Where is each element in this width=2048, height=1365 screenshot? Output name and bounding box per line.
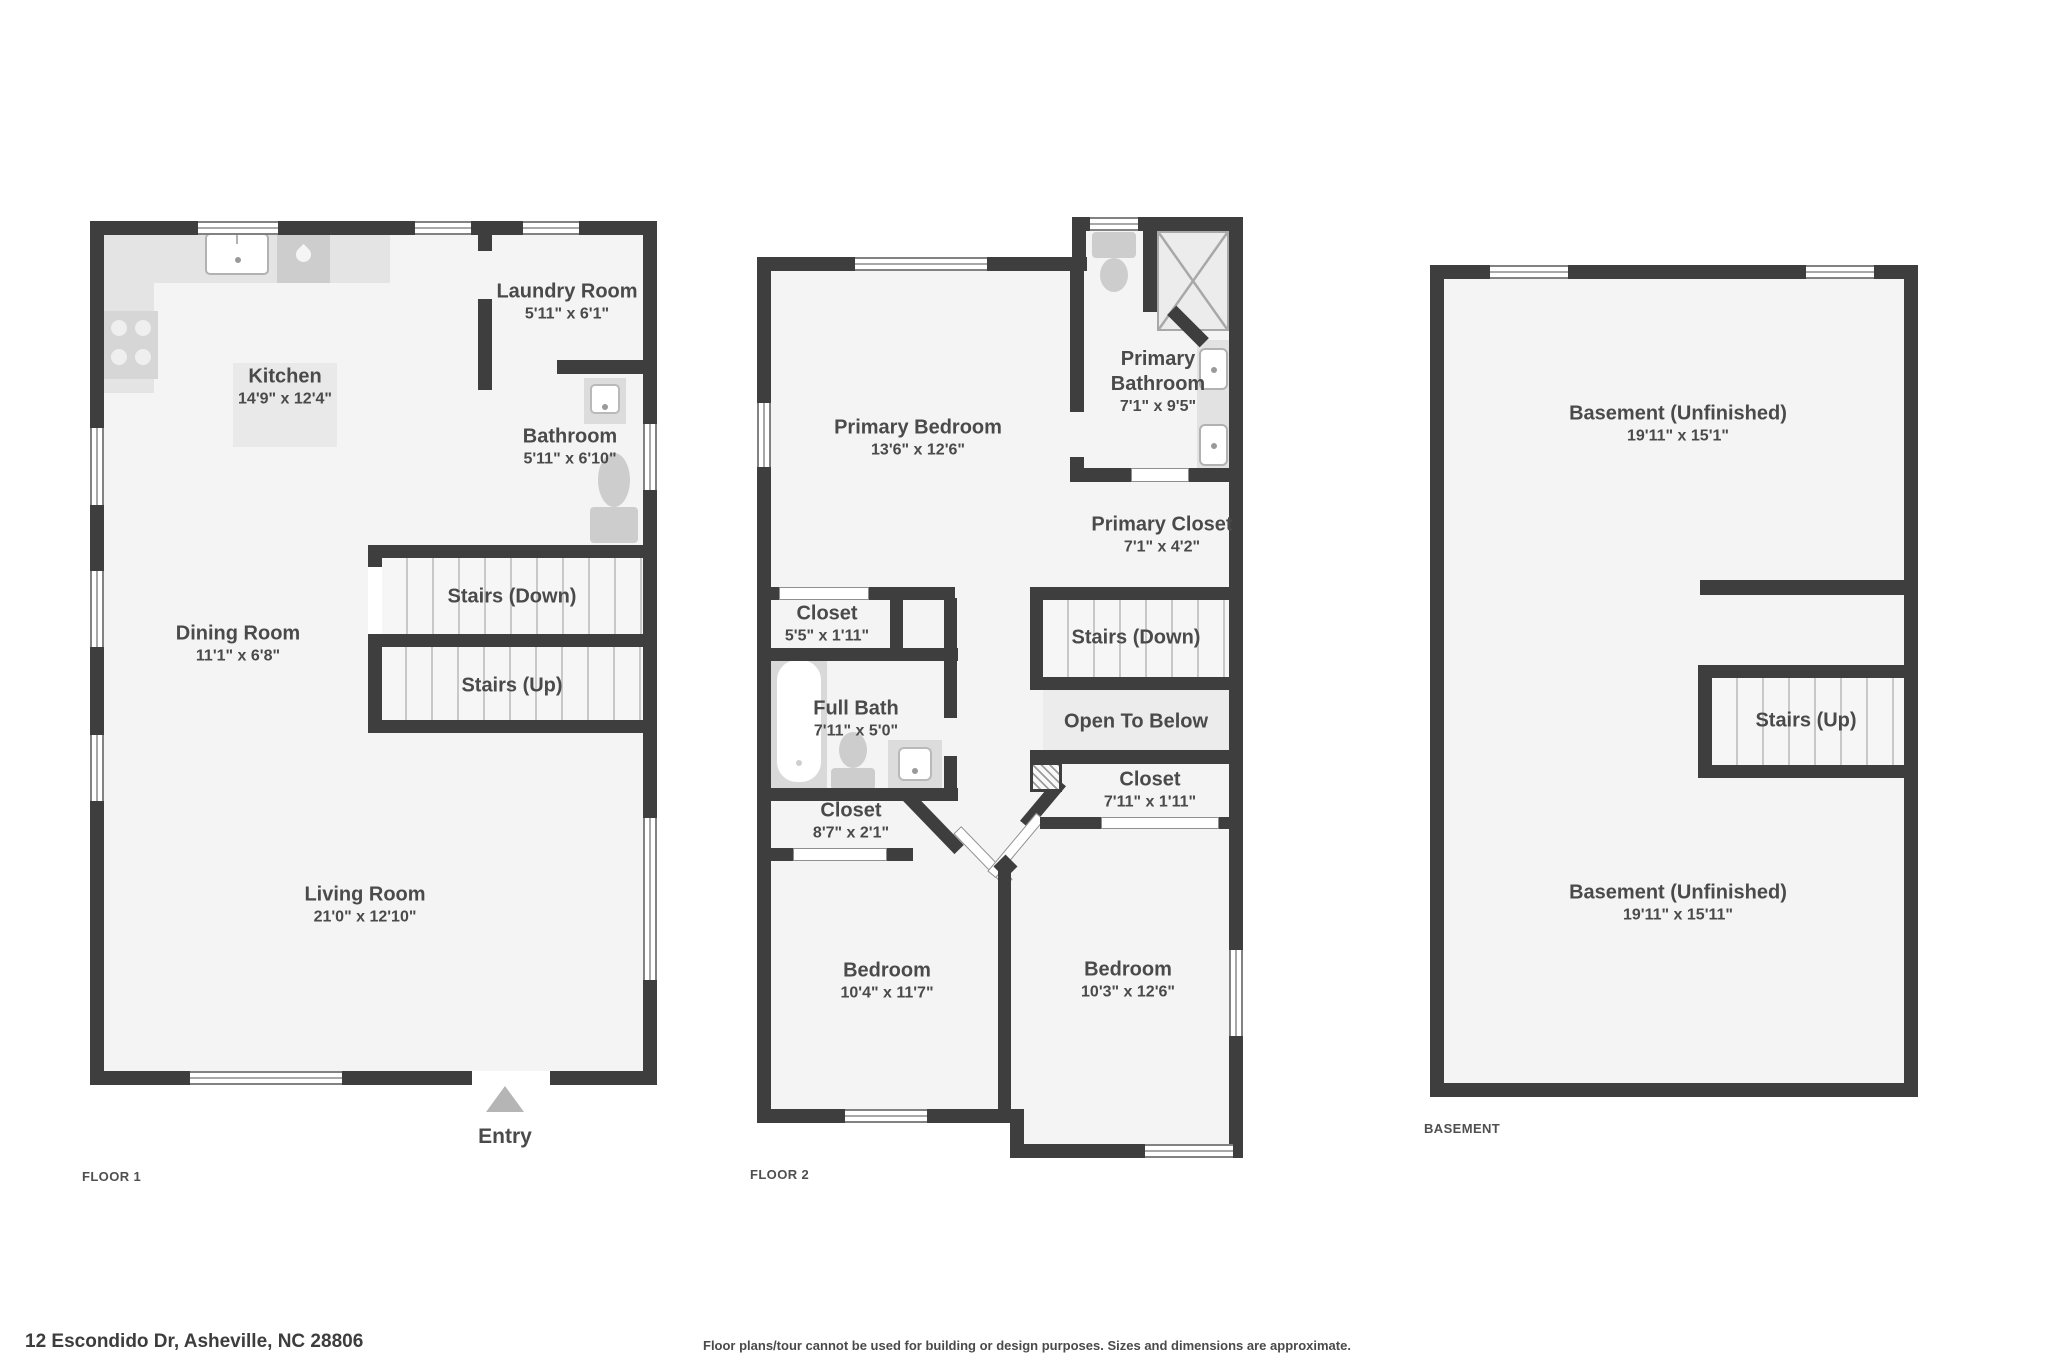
room-label-bedroom: Bedroom 10'4" x 11'7": [840, 959, 933, 1004]
room-name: Stairs (Up): [461, 674, 562, 699]
entry-arrow-icon: [486, 1086, 524, 1112]
window: [523, 221, 579, 235]
closet-doors: [1101, 817, 1219, 829]
wall: [1030, 587, 1043, 690]
room-dims: 7'1" x 9'5": [1083, 397, 1233, 417]
room-name: Closet: [813, 799, 889, 824]
room-label-stairs-down: Stairs (Down): [448, 585, 577, 610]
room-label-full-bath: Full Bath 7'11" x 5'0": [813, 697, 899, 742]
room-dims: 19'11" x 15'11": [1569, 906, 1787, 926]
room-name: Basement (Unfinished): [1569, 881, 1787, 906]
room-name: Bathroom: [523, 425, 617, 450]
room-dims: 11'1" x 6'8": [176, 647, 300, 667]
window: [1145, 1144, 1233, 1158]
room-name: Open To Below: [1064, 710, 1208, 735]
window: [90, 735, 104, 801]
room-name: Bedroom: [1081, 958, 1175, 983]
room-label-stairs-up: Stairs (Up): [461, 674, 562, 699]
window: [90, 571, 104, 647]
room-name: Laundry Room: [496, 280, 637, 305]
wall: [757, 257, 771, 1123]
room-name: Entry: [478, 1124, 532, 1150]
wall: [1070, 257, 1084, 412]
wall: [998, 868, 1011, 1123]
room-dims: 7'11" x 5'0": [813, 722, 899, 742]
window: [855, 257, 987, 271]
room-dims: 7'11" x 1'11": [1104, 793, 1196, 813]
room-dims: 21'0" x 12'10": [304, 908, 425, 928]
wall: [478, 299, 492, 390]
wall: [1904, 265, 1918, 1097]
wall: [368, 634, 643, 647]
basement-tag: BASEMENT: [1424, 1121, 1500, 1136]
window: [1090, 217, 1138, 231]
wall: [557, 360, 657, 374]
room-label-dining-room: Dining Room 11'1" x 6'8": [176, 622, 300, 667]
room-label-primary-bathroom: Primary Bathroom 7'1" x 9'5": [1083, 347, 1233, 417]
room-label-open-to-below: Open To Below: [1064, 710, 1208, 735]
bathroom-sink-icon: [584, 378, 626, 424]
room-dims: 13'6" x 12'6": [834, 441, 1002, 461]
dishwasher-icon: [277, 229, 330, 283]
room-dims: 10'3" x 12'6": [1081, 983, 1175, 1003]
window: [1229, 950, 1243, 1036]
room-name: Bedroom: [840, 959, 933, 984]
room-name: Stairs (Down): [1072, 626, 1201, 651]
railing-hatch: [1030, 762, 1062, 792]
window: [1490, 265, 1568, 279]
bathroom-sink-icon: [888, 740, 942, 788]
wall: [368, 634, 382, 733]
floor2-tag: FLOOR 2: [750, 1167, 809, 1182]
room-name: Full Bath: [813, 697, 899, 722]
wall: [944, 756, 957, 790]
room-label-primary-closet: Primary Closet 7'1" x 4'2": [1091, 513, 1232, 558]
room-name: Stairs (Down): [448, 585, 577, 610]
entry-label: Entry: [478, 1124, 532, 1150]
closet-doors: [779, 587, 869, 600]
wall: [1030, 750, 1243, 764]
room-name: Basement (Unfinished): [1569, 402, 1787, 427]
wall: [944, 598, 957, 718]
room-label-basement-lower: Basement (Unfinished) 19'11" x 15'11": [1569, 881, 1787, 926]
wall: [90, 1071, 657, 1085]
wall: [1700, 580, 1918, 595]
room-label-living-room: Living Room 21'0" x 12'10": [304, 883, 425, 928]
room-name: Stairs (Up): [1755, 709, 1856, 734]
wall: [1430, 265, 1444, 1097]
room-name: Kitchen: [238, 365, 332, 390]
room-dims: 5'11" x 6'1": [496, 305, 637, 325]
address-text: 12 Escondido Dr, Asheville, NC 28806: [25, 1331, 363, 1353]
room-dims: 5'11" x 6'10": [523, 450, 617, 470]
wall: [757, 648, 958, 661]
stair-opening: [368, 567, 382, 634]
closet-doors: [793, 848, 887, 861]
room-name: Closet: [1104, 768, 1196, 793]
floorplan-canvas: Kitchen 14'9" x 12'4" Laundry Room 5'11"…: [0, 0, 2048, 1365]
room-name: Primary Bedroom: [834, 416, 1002, 441]
toilet-icon: [1092, 232, 1136, 292]
room-label-closet: Closet 5'5" x 1'11": [785, 602, 869, 647]
room-name: Primary Bathroom: [1083, 347, 1233, 397]
room-label-bathroom: Bathroom 5'11" x 6'10": [523, 425, 617, 470]
wall: [478, 221, 492, 251]
wall: [1030, 677, 1243, 690]
room-label-kitchen: Kitchen 14'9" x 12'4": [238, 365, 332, 410]
wall: [1143, 230, 1157, 312]
room-dims: 19'11" x 15'1": [1569, 427, 1787, 447]
room-name: Dining Room: [176, 622, 300, 647]
floor1-tag: FLOOR 1: [82, 1169, 141, 1184]
room-label-closet: Closet 7'11" x 1'11": [1104, 768, 1196, 813]
wall: [1070, 457, 1084, 482]
room-dims: 7'1" x 4'2": [1091, 538, 1232, 558]
room-label-basement-upper: Basement (Unfinished) 19'11" x 15'1": [1569, 402, 1787, 447]
wall: [1698, 765, 1918, 778]
wall: [368, 545, 643, 558]
room-dims: 5'5" x 1'11": [785, 627, 869, 647]
room-label-closet: Closet 8'7" x 2'1": [813, 799, 889, 844]
room-name: Primary Closet: [1091, 513, 1232, 538]
window: [90, 428, 104, 505]
wall: [368, 720, 643, 733]
room-label-primary-bedroom: Primary Bedroom 13'6" x 12'6": [834, 416, 1002, 461]
room-dims: 10'4" x 11'7": [840, 984, 933, 1004]
wall: [1698, 665, 1918, 678]
window: [845, 1109, 927, 1123]
wall: [90, 221, 104, 1085]
bathroom-sink-icon: [1199, 424, 1228, 466]
door-opening: [1131, 468, 1189, 482]
window: [643, 818, 657, 980]
disclaimer-text: Floor plans/tour cannot be used for buil…: [703, 1338, 1351, 1353]
room-label-bedroom: Bedroom 10'3" x 12'6": [1081, 958, 1175, 1003]
window: [1806, 265, 1874, 279]
window: [643, 424, 657, 490]
room-label-laundry-room: Laundry Room 5'11" x 6'1": [496, 280, 637, 325]
room-label-stairs-up: Stairs (Up): [1755, 709, 1856, 734]
stove-icon: [104, 311, 158, 379]
window: [415, 221, 471, 235]
wall: [1430, 1083, 1918, 1097]
window: [198, 221, 278, 235]
room-dims: 8'7" x 2'1": [813, 824, 889, 844]
room-dims: 14'9" x 12'4": [238, 390, 332, 410]
entry-opening: [472, 1071, 550, 1085]
room-label-stairs-down: Stairs (Down): [1072, 626, 1201, 651]
window: [190, 1071, 342, 1085]
kitchen-sink-icon: [205, 233, 269, 275]
room-name: Closet: [785, 602, 869, 627]
wall: [1698, 665, 1712, 778]
room-name: Living Room: [304, 883, 425, 908]
hall-opening: [955, 587, 1031, 600]
window: [757, 403, 771, 467]
